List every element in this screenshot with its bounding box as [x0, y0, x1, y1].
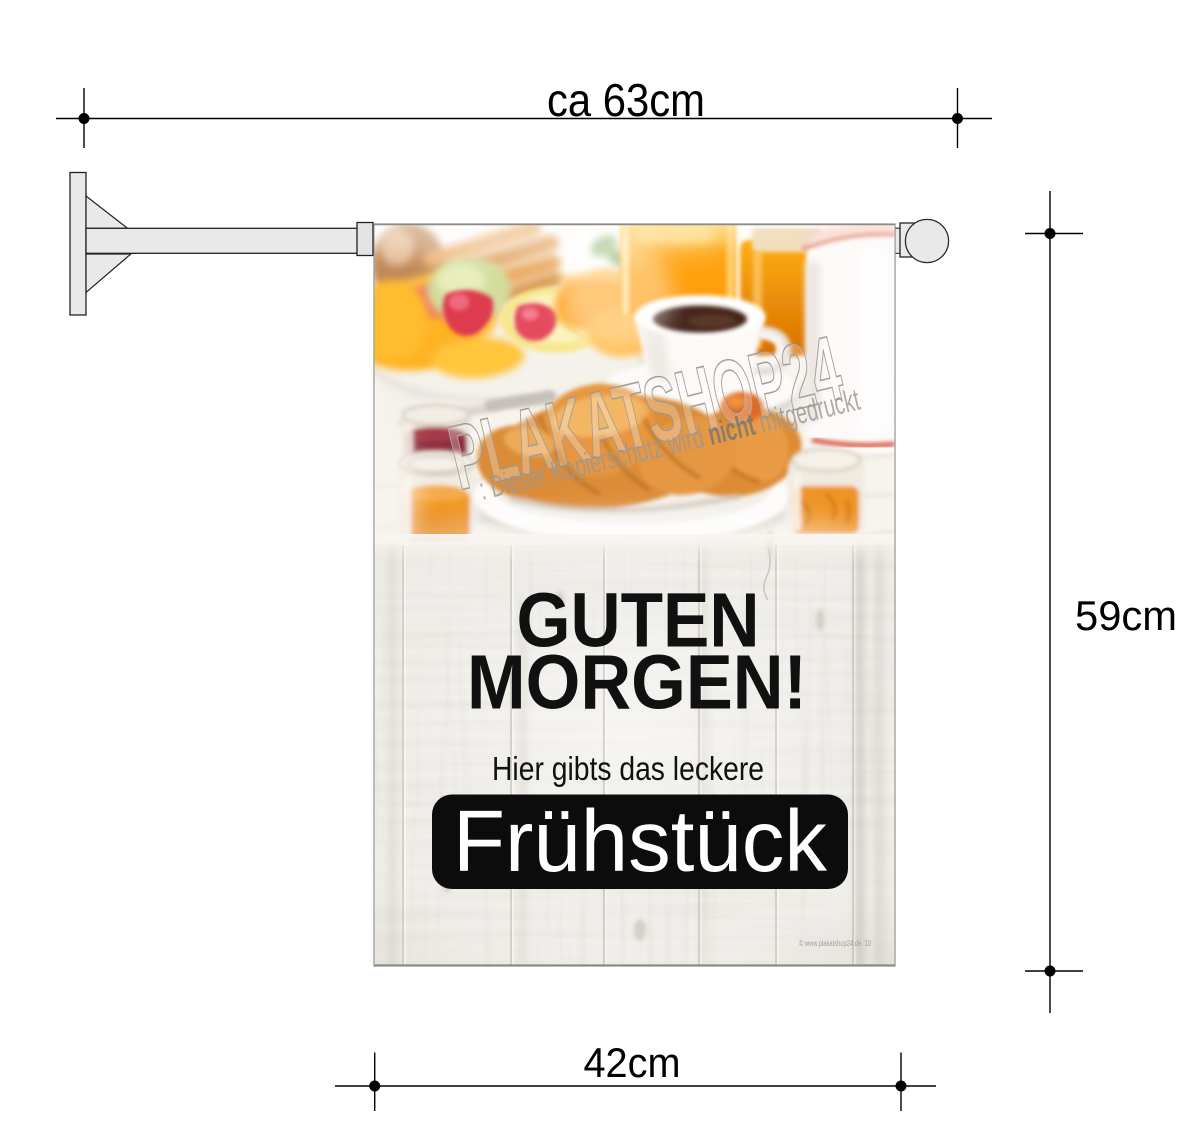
svg-text:Hier gibts das leckere: Hier gibts das leckere	[492, 750, 764, 787]
svg-text:59cm: 59cm	[1075, 592, 1177, 639]
svg-text:ca 63cm: ca 63cm	[547, 74, 705, 126]
svg-text:Frühstück: Frühstück	[453, 793, 827, 890]
svg-text:MORGEN!: MORGEN!	[467, 640, 807, 726]
svg-text:© www.plakatshop24.de 10: © www.plakatshop24.de 10	[799, 939, 871, 948]
svg-text:42cm: 42cm	[584, 1039, 681, 1086]
